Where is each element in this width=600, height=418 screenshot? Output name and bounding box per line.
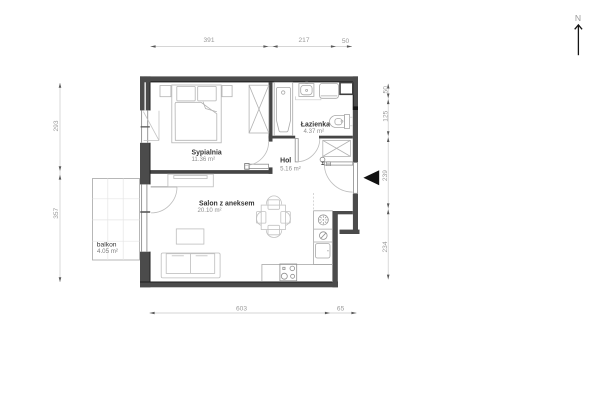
svg-text:391: 391 [203, 37, 214, 44]
svg-text:4.37 m²: 4.37 m² [304, 128, 325, 135]
svg-text:65: 65 [337, 306, 345, 313]
svg-text:5.16 m²: 5.16 m² [280, 165, 301, 172]
svg-text:603: 603 [236, 306, 247, 313]
svg-text:239: 239 [382, 170, 389, 181]
svg-text:4.05 m²: 4.05 m² [97, 248, 118, 255]
svg-text:125: 125 [382, 110, 389, 121]
svg-text:50: 50 [382, 86, 389, 94]
svg-text:50: 50 [342, 38, 350, 45]
svg-text:357: 357 [53, 207, 60, 218]
svg-text:11.36 m²: 11.36 m² [192, 156, 216, 163]
svg-text:293: 293 [53, 120, 60, 131]
svg-text:217: 217 [298, 37, 309, 44]
svg-text:234: 234 [382, 241, 389, 252]
svg-text:N: N [575, 13, 581, 23]
svg-text:20.10 m²: 20.10 m² [198, 207, 222, 214]
svg-text:Hol: Hol [280, 157, 291, 164]
